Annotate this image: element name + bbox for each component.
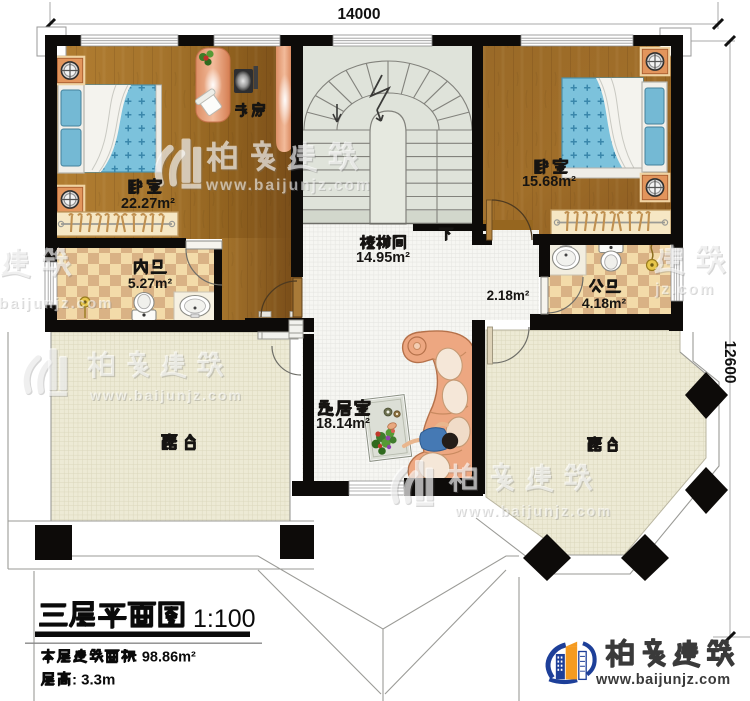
- svg-text:: 3.3m: : 3.3m: [72, 672, 115, 689]
- svg-text:4.18m²: 4.18m²: [582, 295, 627, 311]
- svg-text:12600: 12600: [721, 340, 738, 383]
- svg-text:www.baijunjz.com: www.baijunjz.com: [89, 387, 243, 403]
- svg-text:www.baijunjz.com: www.baijunjz.com: [205, 177, 372, 194]
- svg-text:: 98.86m²: : 98.86m²: [133, 650, 196, 666]
- svg-text:www.baijunjz.com: www.baijunjz.com: [595, 672, 731, 688]
- svg-text:www.baijunjz.com: www.baijunjz.com: [0, 295, 113, 312]
- svg-text:18.14m²: 18.14m²: [316, 416, 370, 432]
- svg-text:22.27m²: 22.27m²: [121, 196, 175, 212]
- svg-text:1:100: 1:100: [193, 605, 256, 633]
- svg-text:www.baijunjz.com: www.baijunjz.com: [454, 504, 612, 520]
- svg-text:14000: 14000: [337, 6, 380, 23]
- svg-text:15.68m²: 15.68m²: [522, 174, 576, 190]
- svg-text:2.18m²: 2.18m²: [487, 288, 530, 303]
- svg-text:5.27m²: 5.27m²: [128, 275, 173, 291]
- svg-text:jz.com: jz.com: [654, 281, 715, 298]
- svg-text:14.95m²: 14.95m²: [356, 250, 410, 266]
